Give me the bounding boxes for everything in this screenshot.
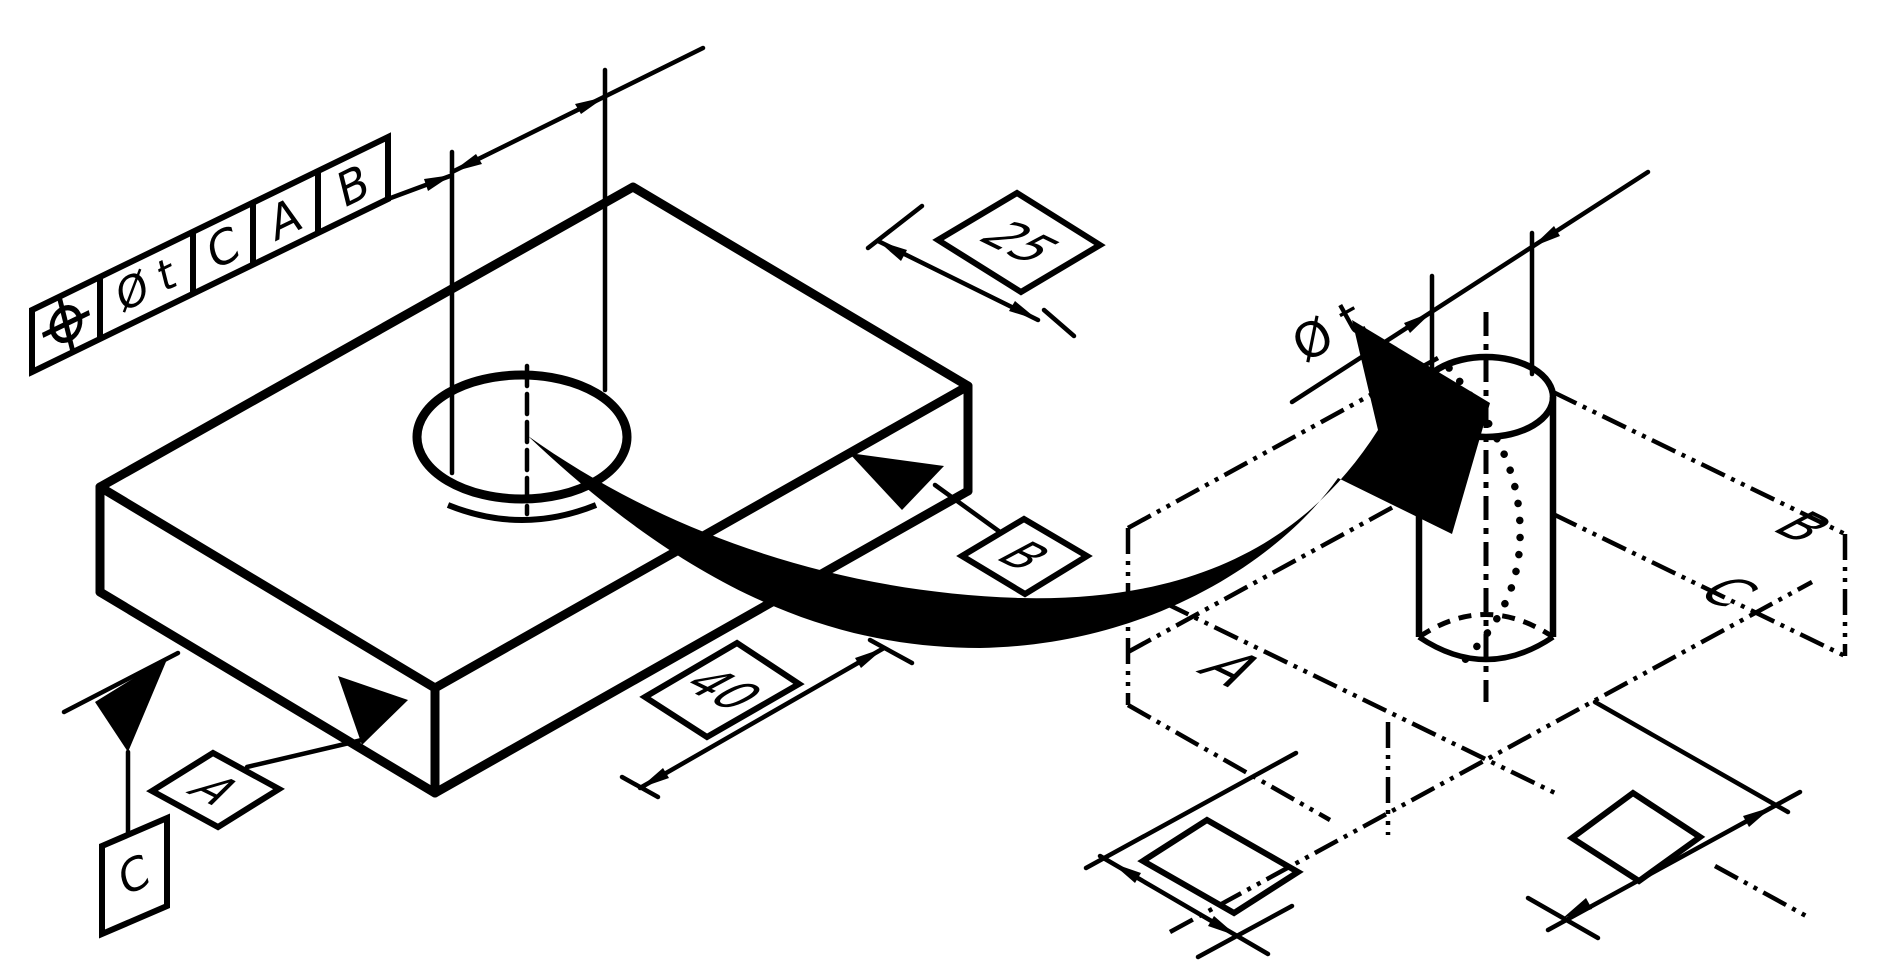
- datum-a-triangle: [338, 676, 408, 745]
- dim-25-value: 25: [964, 215, 1075, 272]
- feature-control-frame: Ø t C A B: [32, 137, 452, 372]
- fcf-leader-arrowhead: [424, 175, 452, 191]
- zone-diameter-dimension: Ø t: [1283, 172, 1648, 402]
- basic-dimension-25: 25: [868, 193, 1100, 336]
- top-dimension: [452, 48, 703, 473]
- datum-b-triangle: [849, 453, 944, 510]
- datum-plane-labels: A B C: [1180, 504, 1848, 696]
- position-symbol-icon: [36, 287, 96, 361]
- datum-c-triangle: [95, 657, 168, 752]
- fcf-tolerance-value: Ø t: [112, 248, 181, 324]
- plane-b-label: B: [1758, 504, 1849, 551]
- ground-dimension-left: [1086, 753, 1298, 957]
- hole-bottom-arc: [448, 505, 596, 520]
- basic-dim-box-empty-left: [1143, 820, 1298, 913]
- dim-40-value: 40: [667, 662, 778, 719]
- ground-dimension-right: [1528, 702, 1800, 938]
- basic-dim-box-empty-right: [1572, 793, 1700, 881]
- datum-c-label: C: [114, 844, 154, 907]
- datum-a-label: A: [173, 768, 256, 811]
- zone-diameter-label: Ø t: [1283, 290, 1373, 374]
- gdt-drawing-canvas: Ø t C A B 25 40 A: [0, 0, 1890, 975]
- hole: [417, 366, 627, 520]
- datum-b-label: B: [982, 534, 1065, 577]
- plane-a-label: A: [1180, 643, 1282, 696]
- drawing-page: Ø t C A B 25 40 A: [0, 0, 1890, 975]
